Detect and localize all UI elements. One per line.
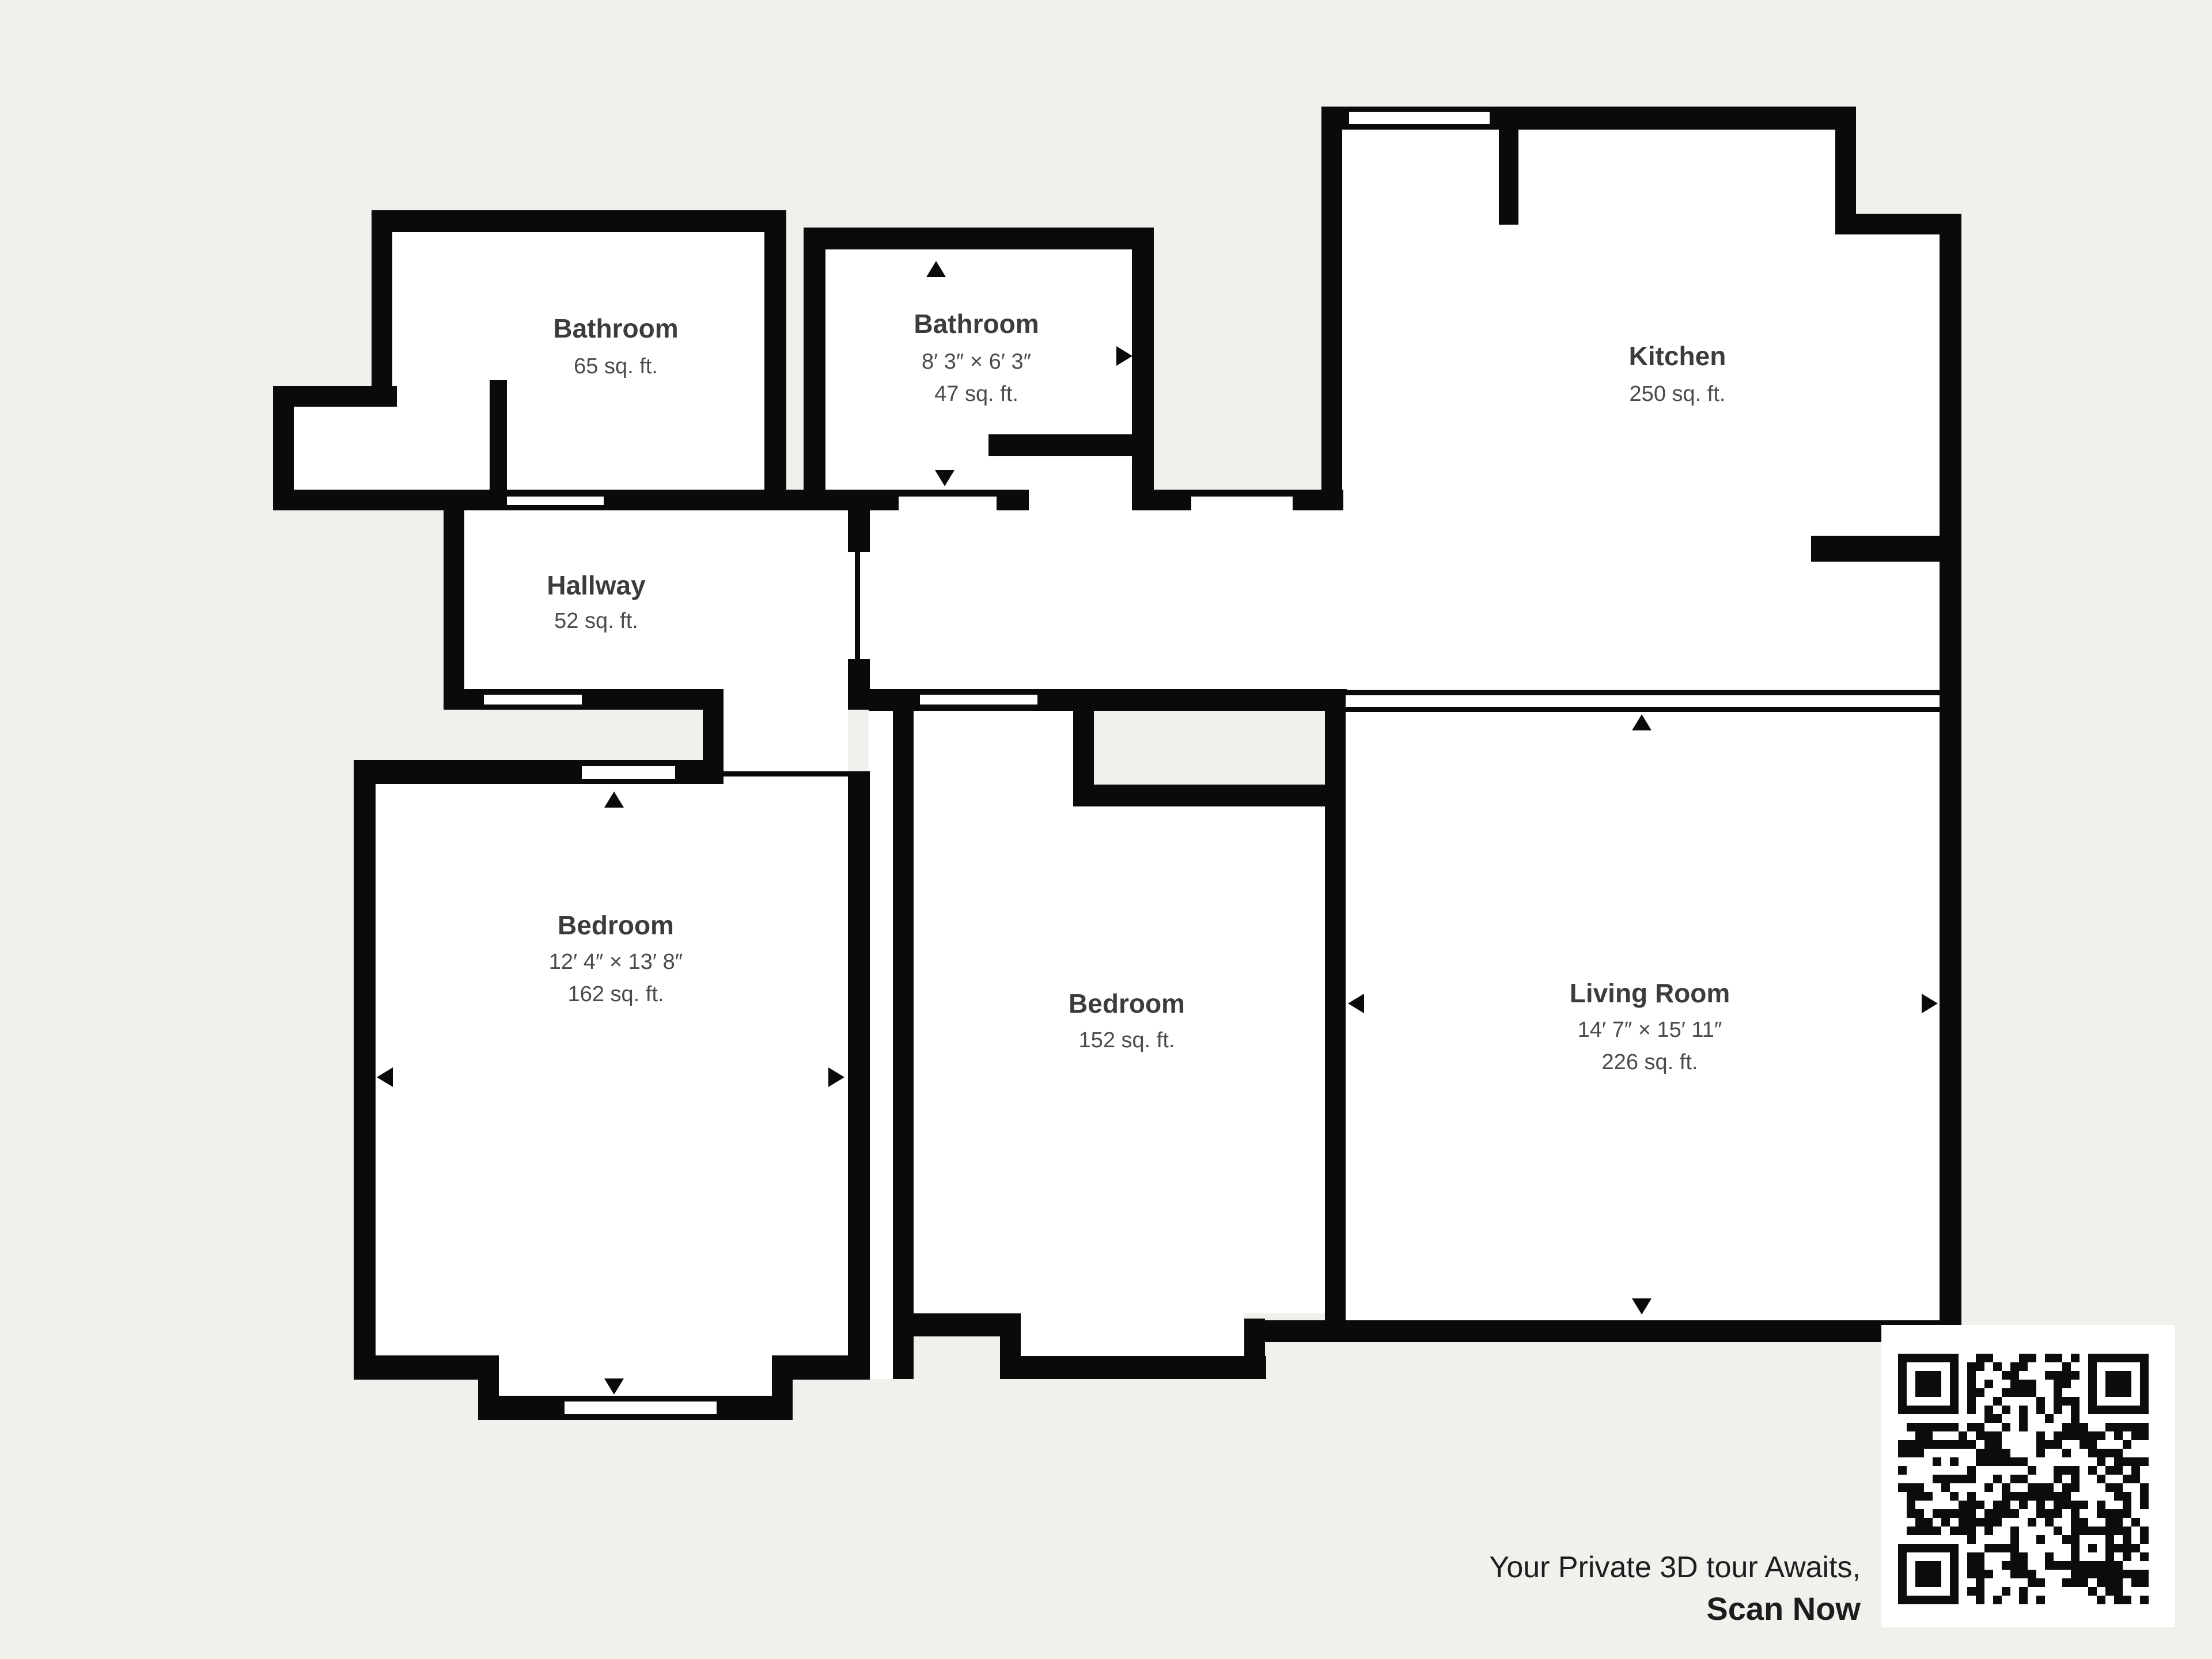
qr-module (2131, 1570, 2140, 1578)
qr-module (2080, 1423, 2088, 1431)
qr-module (1967, 1475, 1976, 1483)
qr-module (1941, 1475, 1950, 1483)
qr-module (2105, 1587, 2114, 1596)
qr-module (2062, 1449, 2071, 1457)
qr-module (2140, 1362, 2149, 1371)
qr-module (1907, 1544, 1915, 1552)
qr-module (2071, 1578, 2080, 1587)
qr-module (2002, 1544, 2010, 1552)
qr-module (2123, 1501, 2131, 1509)
qr-module (1976, 1578, 1984, 1587)
qr-module (1967, 1406, 1976, 1414)
qr-module (2071, 1371, 2080, 1380)
qr-module (1924, 1354, 1933, 1362)
qr-module (2062, 1380, 2071, 1388)
qr-module (2010, 1561, 2019, 1570)
qr-module (2088, 1570, 2097, 1578)
bedroom-1-label: 162 sq. ft. (568, 982, 664, 1006)
qr-module (1950, 1406, 1959, 1414)
qr-module (2123, 1535, 2131, 1544)
qr-module (2071, 1552, 2080, 1561)
qr-module (2062, 1578, 2071, 1587)
qr-module (2088, 1362, 2097, 1371)
qr-module (1924, 1596, 1933, 1604)
qr-module (2028, 1354, 2036, 1362)
qr-module (2123, 1492, 2131, 1501)
qr-module (2123, 1457, 2131, 1466)
room-floor (1342, 130, 1835, 536)
qr-module (1898, 1561, 1907, 1570)
qr-module (2088, 1466, 2097, 1475)
qr-module (2028, 1388, 2036, 1397)
qr-module (2140, 1397, 2149, 1406)
qr-module (1959, 1431, 1967, 1440)
qr-module (2062, 1483, 2071, 1492)
qr-module (2114, 1388, 2123, 1397)
qr-module (2062, 1371, 2071, 1380)
qr-module (1924, 1380, 1933, 1388)
qr-module (2071, 1414, 2080, 1423)
qr-module (1907, 1406, 1915, 1414)
bedroom-2-label: Bedroom (1069, 988, 1185, 1018)
qr-module (1933, 1423, 1941, 1431)
floor-plan-page: Bathroom65 sq. ft.Bathroom8′ 3″ × 6′ 3″4… (0, 0, 2212, 1659)
wall (772, 1355, 870, 1380)
qr-module (1959, 1518, 1967, 1527)
qr-module (1907, 1440, 1915, 1449)
qr-module (1959, 1509, 1967, 1518)
threshold-line (920, 704, 1037, 710)
qr-module (2045, 1354, 2054, 1362)
qr-module (2010, 1570, 2019, 1578)
qr-module (2062, 1431, 2071, 1440)
qr-module (1976, 1354, 1984, 1362)
qr-module (2140, 1492, 2149, 1501)
qr-module (2140, 1578, 2149, 1587)
qr-module (2071, 1397, 2080, 1406)
qr-module (1898, 1483, 1907, 1492)
qr-module (1898, 1354, 1907, 1362)
qr-module (1915, 1440, 1924, 1449)
qr-module (2114, 1570, 2123, 1578)
qr-module (2114, 1423, 2123, 1431)
qr-module (1984, 1483, 1993, 1492)
qr-module (1898, 1466, 1907, 1475)
qr-module (1967, 1570, 1976, 1578)
qr-module (1898, 1397, 1907, 1406)
qr-module (2036, 1578, 2045, 1587)
qr-module (2071, 1431, 2080, 1440)
qr-module (1924, 1518, 1933, 1527)
qr-module (1907, 1492, 1915, 1501)
qr-module (2140, 1423, 2149, 1431)
qr-module (2123, 1544, 2131, 1552)
qr-module (1993, 1397, 2002, 1406)
qr-module (1898, 1406, 1907, 1414)
qr-module (2019, 1587, 2028, 1596)
qr-module (1967, 1380, 1976, 1388)
qr-module (1993, 1362, 2002, 1371)
room-floor (1346, 712, 1940, 1320)
qr-module (2071, 1466, 2080, 1475)
qr-module (2123, 1596, 2131, 1604)
qr-module (2088, 1544, 2097, 1552)
qr-module (1915, 1578, 1924, 1587)
qr-module (2010, 1544, 2019, 1552)
kitchen-label: 250 sq. ft. (1630, 382, 1726, 406)
qr-module (1967, 1587, 1976, 1596)
qr-module (2010, 1380, 2019, 1388)
threshold-line (855, 552, 860, 659)
qr-module (1924, 1440, 1933, 1449)
footer-scan-now-text: Scan Now (1706, 1590, 1861, 1627)
qr-module (2097, 1406, 2105, 1414)
qr-module (2036, 1406, 2045, 1414)
qr-module (2028, 1466, 2036, 1475)
qr-module (1898, 1587, 1907, 1596)
qr-module (2071, 1501, 2080, 1509)
threshold-line (1346, 690, 1940, 695)
qr-module (2088, 1371, 2097, 1380)
qr-module (2019, 1552, 2028, 1561)
qr-module (2002, 1388, 2010, 1397)
qr-module (2062, 1397, 2071, 1406)
room-floor (869, 510, 1940, 689)
qr-module (2140, 1483, 2149, 1492)
qr-module (1967, 1527, 1976, 1535)
footer-tour-text: Your Private 3D tour Awaits, (1489, 1551, 1861, 1584)
qr-module (1907, 1423, 1915, 1431)
qr-module (2140, 1388, 2149, 1397)
qr-module (1984, 1414, 1993, 1423)
qr-module (2045, 1483, 2054, 1492)
qr-module (2097, 1457, 2105, 1466)
qr-module (1915, 1406, 1924, 1414)
qr-module (2123, 1552, 2131, 1561)
qr-module (2080, 1578, 2088, 1587)
qr-module (2114, 1483, 2123, 1492)
qr-module (2123, 1475, 2131, 1483)
qr-module (1950, 1596, 1959, 1604)
qr-module (2123, 1354, 2131, 1362)
qr-module (2019, 1380, 2028, 1388)
qr-module (2002, 1587, 2010, 1596)
qr-module (1967, 1466, 1976, 1475)
qr-module (1924, 1544, 1933, 1552)
qr-module (2088, 1440, 2097, 1449)
qr-module (1915, 1509, 1924, 1518)
wall (372, 210, 786, 232)
qr-module (2036, 1535, 2045, 1544)
qr-module (2062, 1423, 2071, 1431)
qr-module (2054, 1388, 2062, 1397)
qr-module (2105, 1371, 2114, 1380)
qr-module (2105, 1570, 2114, 1578)
wall (703, 689, 724, 784)
qr-module (1967, 1388, 1976, 1397)
qr-module (2071, 1509, 2080, 1518)
qr-module (2071, 1483, 2080, 1492)
wall (1132, 228, 1154, 510)
wall (1499, 130, 1518, 225)
qr-module (2114, 1561, 2123, 1570)
qr-module (2062, 1362, 2071, 1371)
qr-module (1950, 1561, 1959, 1570)
qr-module (1950, 1475, 1959, 1483)
qr-module (2105, 1544, 2114, 1552)
qr-module (2105, 1535, 2114, 1544)
room-floor (464, 510, 848, 689)
qr-module (2105, 1578, 2114, 1587)
qr-module (2062, 1501, 2071, 1509)
wall (893, 689, 914, 1379)
qr-module (1950, 1570, 1959, 1578)
qr-module (1941, 1406, 1950, 1414)
qr-module (2105, 1509, 2114, 1518)
qr-module (1984, 1449, 1993, 1457)
qr-module (1915, 1483, 1924, 1492)
wall (988, 434, 1154, 456)
qr-module (1967, 1501, 1976, 1509)
qr-module (2054, 1440, 2062, 1449)
qr-module (2028, 1483, 2036, 1492)
qr-module (1993, 1449, 2002, 1457)
qr-module (1915, 1431, 1924, 1440)
qr-module (2062, 1535, 2071, 1544)
qr-module (1933, 1380, 1941, 1388)
qr-module (1950, 1423, 1959, 1431)
qr-module (1950, 1362, 1959, 1371)
wall (444, 510, 464, 710)
qr-module (2140, 1596, 2149, 1604)
qr-module (2019, 1501, 2028, 1509)
bathroom-2-label: Bathroom (914, 309, 1039, 339)
qr-module (1967, 1492, 1976, 1501)
qr-module (1941, 1440, 1950, 1449)
qr-module (1898, 1380, 1907, 1388)
qr-module (1967, 1509, 1976, 1518)
qr-module (1976, 1362, 1984, 1371)
wall (1940, 214, 1961, 1342)
qr-module (2097, 1596, 2105, 1604)
qr-module (1907, 1527, 1915, 1535)
qr-module (1907, 1483, 1915, 1492)
qr-module (2019, 1457, 2028, 1466)
qr-module (2045, 1561, 2054, 1570)
qr-module (2105, 1449, 2114, 1457)
qr-module (1933, 1457, 1941, 1466)
qr-module (2088, 1587, 2097, 1596)
qr-module (1950, 1552, 1959, 1561)
qr-module (2010, 1492, 2019, 1501)
qr-module (2080, 1431, 2088, 1440)
qr-module (1950, 1492, 1959, 1501)
qr-module (1915, 1561, 1924, 1570)
qr-module (1907, 1501, 1915, 1509)
bedroom-1-label: Bedroom (558, 910, 674, 940)
qr-module (1915, 1388, 1924, 1397)
qr-module (2054, 1431, 2062, 1440)
qr-module (2123, 1406, 2131, 1414)
qr-module (2088, 1527, 2097, 1535)
qr-module (1898, 1440, 1907, 1449)
qr-module (2123, 1423, 2131, 1431)
qr-module (1924, 1431, 1933, 1440)
qr-module (1993, 1501, 2002, 1509)
qr-module (2140, 1354, 2149, 1362)
qr-module (2114, 1587, 2123, 1596)
qr-module (1993, 1414, 2002, 1423)
qr-module (2028, 1380, 2036, 1388)
qr-module (1950, 1587, 1959, 1596)
qr-module (1941, 1509, 1950, 1518)
qr-module (2105, 1561, 2114, 1570)
qr-module (2045, 1518, 2054, 1527)
qr-module (1933, 1561, 1941, 1570)
qr-module (2036, 1501, 2045, 1509)
bathroom-1-label: Bathroom (553, 313, 678, 343)
qr-module (2028, 1570, 2036, 1578)
qr-module (1941, 1518, 1950, 1527)
qr-module (2123, 1527, 2131, 1535)
qr-module (2054, 1380, 2062, 1388)
hallway-label: 52 sq. ft. (554, 609, 638, 633)
qr-module (1984, 1570, 1993, 1578)
qr-module (1933, 1570, 1941, 1578)
qr-module (2097, 1449, 2105, 1457)
qr-module (1984, 1527, 1993, 1535)
qr-module (2071, 1561, 2080, 1570)
qr-module (2019, 1406, 2028, 1414)
qr-module (1967, 1397, 1976, 1406)
qr-module (2036, 1492, 2045, 1501)
qr-module (2131, 1466, 2140, 1475)
qr-module (2140, 1552, 2149, 1561)
qr-module (1950, 1509, 1959, 1518)
room-floor (869, 710, 893, 1379)
qr-module (2114, 1466, 2123, 1475)
qr-module (1976, 1457, 1984, 1466)
qr-module (2123, 1570, 2131, 1578)
room-floor (914, 710, 1073, 805)
qr-module (2088, 1354, 2097, 1362)
wall (490, 380, 507, 490)
qr-module (2097, 1527, 2105, 1535)
qr-module (1967, 1552, 1976, 1561)
qr-module (2088, 1561, 2097, 1570)
bedroom-2-label: 152 sq. ft. (1079, 1028, 1175, 1052)
qr-module (1993, 1457, 2002, 1466)
wall (1321, 107, 1342, 510)
qr-module (1959, 1440, 1967, 1449)
qr-module (2131, 1406, 2140, 1414)
qr-module (1967, 1535, 1976, 1544)
room-floor (914, 805, 1325, 1313)
qr-module (1993, 1440, 2002, 1449)
qr-module (2045, 1414, 2054, 1423)
qr-module (1993, 1596, 2002, 1604)
qr-module (1915, 1380, 1924, 1388)
qr-module (1898, 1552, 1907, 1561)
qr-module (2010, 1362, 2019, 1371)
qr-code (1881, 1325, 2175, 1627)
qr-module (1984, 1544, 1993, 1552)
qr-module (2019, 1388, 2028, 1397)
qr-module (2002, 1501, 2010, 1509)
opening (1191, 497, 1293, 510)
qr-module (1933, 1596, 1941, 1604)
living-room-label: Living Room (1570, 978, 1730, 1008)
qr-module (1915, 1371, 1924, 1380)
room-floor (724, 689, 848, 784)
qr-module (1907, 1509, 1915, 1518)
qr-module (2002, 1371, 2010, 1380)
qr-module (2097, 1501, 2105, 1509)
bathroom-2-label: 47 sq. ft. (934, 382, 1018, 406)
qr-module (1915, 1570, 1924, 1578)
qr-module (2054, 1397, 2062, 1406)
qr-module (2010, 1388, 2019, 1397)
floor-plan-canvas: Bathroom65 sq. ft.Bathroom8′ 3″ × 6′ 3″4… (0, 0, 2212, 1659)
qr-module (1941, 1544, 1950, 1552)
qr-module (1976, 1501, 1984, 1509)
qr-module (1933, 1527, 1941, 1535)
qr-module (2097, 1509, 2105, 1518)
room-floor (294, 407, 392, 490)
qr-module (2114, 1518, 2123, 1527)
qr-module (2036, 1596, 2045, 1604)
qr-module (1959, 1501, 1967, 1509)
qr-module (2131, 1431, 2140, 1440)
qr-module (2140, 1431, 2149, 1440)
qr-module (1984, 1354, 1993, 1362)
qr-module (2140, 1527, 2149, 1535)
qr-module (2080, 1440, 2088, 1449)
qr-module (2045, 1440, 2054, 1449)
qr-module (1915, 1596, 1924, 1604)
qr-module (2080, 1570, 2088, 1578)
qr-module (2019, 1492, 2028, 1501)
qr-module (1933, 1354, 1941, 1362)
qr-module (1941, 1483, 1950, 1492)
qr-module (2062, 1561, 2071, 1570)
qr-module (1924, 1388, 1933, 1397)
qr-module (1967, 1518, 1976, 1527)
qr-module (1993, 1431, 2002, 1440)
qr-module (1984, 1431, 1993, 1440)
qr-module (1915, 1544, 1924, 1552)
qr-module (1976, 1431, 1984, 1440)
qr-module (1941, 1423, 1950, 1431)
qr-module (1993, 1475, 2002, 1483)
threshold-line (507, 505, 604, 510)
qr-module (2036, 1397, 2045, 1406)
qr-module (1959, 1475, 1967, 1483)
qr-module (2019, 1423, 2028, 1431)
qr-module (1976, 1561, 1984, 1570)
qr-module (2010, 1509, 2019, 1518)
kitchen-label: Kitchen (1629, 341, 1726, 371)
qr-module (1950, 1440, 1959, 1449)
qr-module (1898, 1371, 1907, 1380)
bathroom-1-label: 65 sq. ft. (574, 354, 658, 378)
qr-module (1924, 1527, 1933, 1535)
qr-module (2071, 1423, 2080, 1431)
qr-module (1976, 1518, 1984, 1527)
qr-module (1933, 1509, 1941, 1518)
qr-module (2071, 1518, 2080, 1527)
qr-module (2002, 1561, 2010, 1570)
